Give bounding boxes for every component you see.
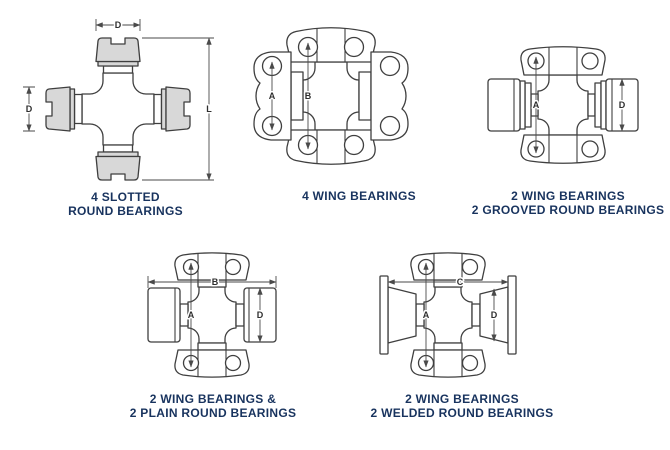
dim-label-d-left: D: [26, 104, 33, 114]
wing-bearing-top: [521, 47, 605, 75]
dimension-d-left: D: [23, 87, 35, 131]
caption-2-wing-2-grooved-round-bearings: 2 WING BEARINGS 2 GROOVED ROUND BEARINGS: [468, 189, 668, 217]
dim-label-a: A: [269, 91, 276, 101]
caption-4-slotted-round-bearings: 4 SLOTTED ROUND BEARINGS: [18, 190, 233, 218]
plain-bearing-left: [148, 288, 188, 342]
caption-4-wing-bearings: 4 WING BEARINGS: [243, 189, 475, 203]
caption-line: 2 PLAIN ROUND BEARINGS: [122, 406, 304, 420]
caption-line: 2 GROOVED ROUND BEARINGS: [468, 203, 668, 217]
figure-4-wing-bearings: A B 4 WING BEARINGS: [243, 4, 475, 203]
dimension-b: B: [148, 276, 276, 288]
caption-line: 4 WING BEARINGS: [243, 189, 475, 203]
caption-line: 2 WELDED ROUND BEARINGS: [356, 406, 568, 420]
grooved-bearing-left: [488, 79, 538, 131]
caption-2-wing-2-plain-round-bearings: 2 WING BEARINGS & 2 PLAIN ROUND BEARINGS: [122, 392, 304, 420]
wing-bearing-top: [287, 28, 375, 62]
wing-bearing-bottom: [411, 343, 485, 377]
caption-line: 4 SLOTTED: [18, 190, 233, 204]
dim-label-d: D: [257, 310, 264, 320]
slotted-bearing-bottom: [96, 145, 140, 180]
dim-label-d: D: [619, 100, 626, 110]
dim-label-b: B: [212, 277, 219, 287]
drawing-2-wing-2-grooved-round-bearings: A D: [468, 20, 668, 183]
wing-bearing-left: [254, 52, 303, 140]
dim-label-b: B: [305, 91, 312, 101]
drawing-4-slotted-round-bearings: D D L: [18, 14, 233, 184]
dim-label-a: A: [188, 310, 195, 320]
dim-label-d: D: [491, 310, 498, 320]
dim-label-d-top: D: [115, 20, 122, 30]
dim-label-a: A: [423, 310, 430, 320]
figure-2-wing-2-grooved-round-bearings: A D 2 WING BEARINGS 2 GROOVED ROUND BEAR…: [468, 20, 668, 217]
grooved-bearing-right: [588, 79, 638, 131]
slotted-bearing-left: [46, 87, 82, 131]
drawing-2-wing-2-plain-round-bearings: B A D: [122, 228, 302, 386]
figure-4-slotted-round-bearings: D D L 4 SLOTTED ROUND BEARINGS: [18, 14, 233, 218]
caption-line: ROUND BEARINGS: [18, 204, 233, 218]
dim-label-c: C: [457, 277, 464, 287]
cross-body: [538, 75, 588, 135]
wing-bearing-right: [359, 52, 408, 140]
caption-2-wing-2-welded-round-bearings: 2 WING BEARINGS 2 WELDED ROUND BEARINGS: [356, 392, 568, 420]
drawing-4-wing-bearings: A B: [243, 4, 473, 182]
welded-bearing-left: [380, 276, 424, 354]
cross-body: [424, 287, 472, 343]
caption-line: 2 WING BEARINGS: [356, 392, 568, 406]
dim-label-a: A: [533, 100, 540, 110]
dimension-d-top: D: [96, 19, 140, 31]
dim-label-l: L: [206, 104, 212, 114]
slotted-bearing-right: [154, 87, 190, 131]
slotted-bearing-top: [96, 38, 140, 73]
wing-bearing-bottom: [175, 343, 249, 377]
caption-line: 2 WING BEARINGS &: [122, 392, 304, 406]
wing-bearing-bottom: [287, 130, 375, 164]
cross-body: [82, 73, 154, 145]
drawing-2-wing-2-welded-round-bearings: C A D: [356, 228, 566, 386]
bearing-types-diagram: D D L 4 SLOTTED ROUND BEARINGS: [0, 0, 670, 450]
figure-2-wing-2-welded-round-bearings: C A D 2 WING BEARINGS 2 WELDED ROUND BEA…: [356, 228, 568, 420]
caption-line: 2 WING BEARINGS: [468, 189, 668, 203]
cross-body: [188, 287, 236, 343]
figure-2-wing-2-plain-round-bearings: B A D 2 WING BEARINGS & 2 PLAIN ROUND BE…: [122, 228, 304, 420]
cross-body: [303, 62, 359, 130]
wing-bearing-bottom: [521, 135, 605, 163]
